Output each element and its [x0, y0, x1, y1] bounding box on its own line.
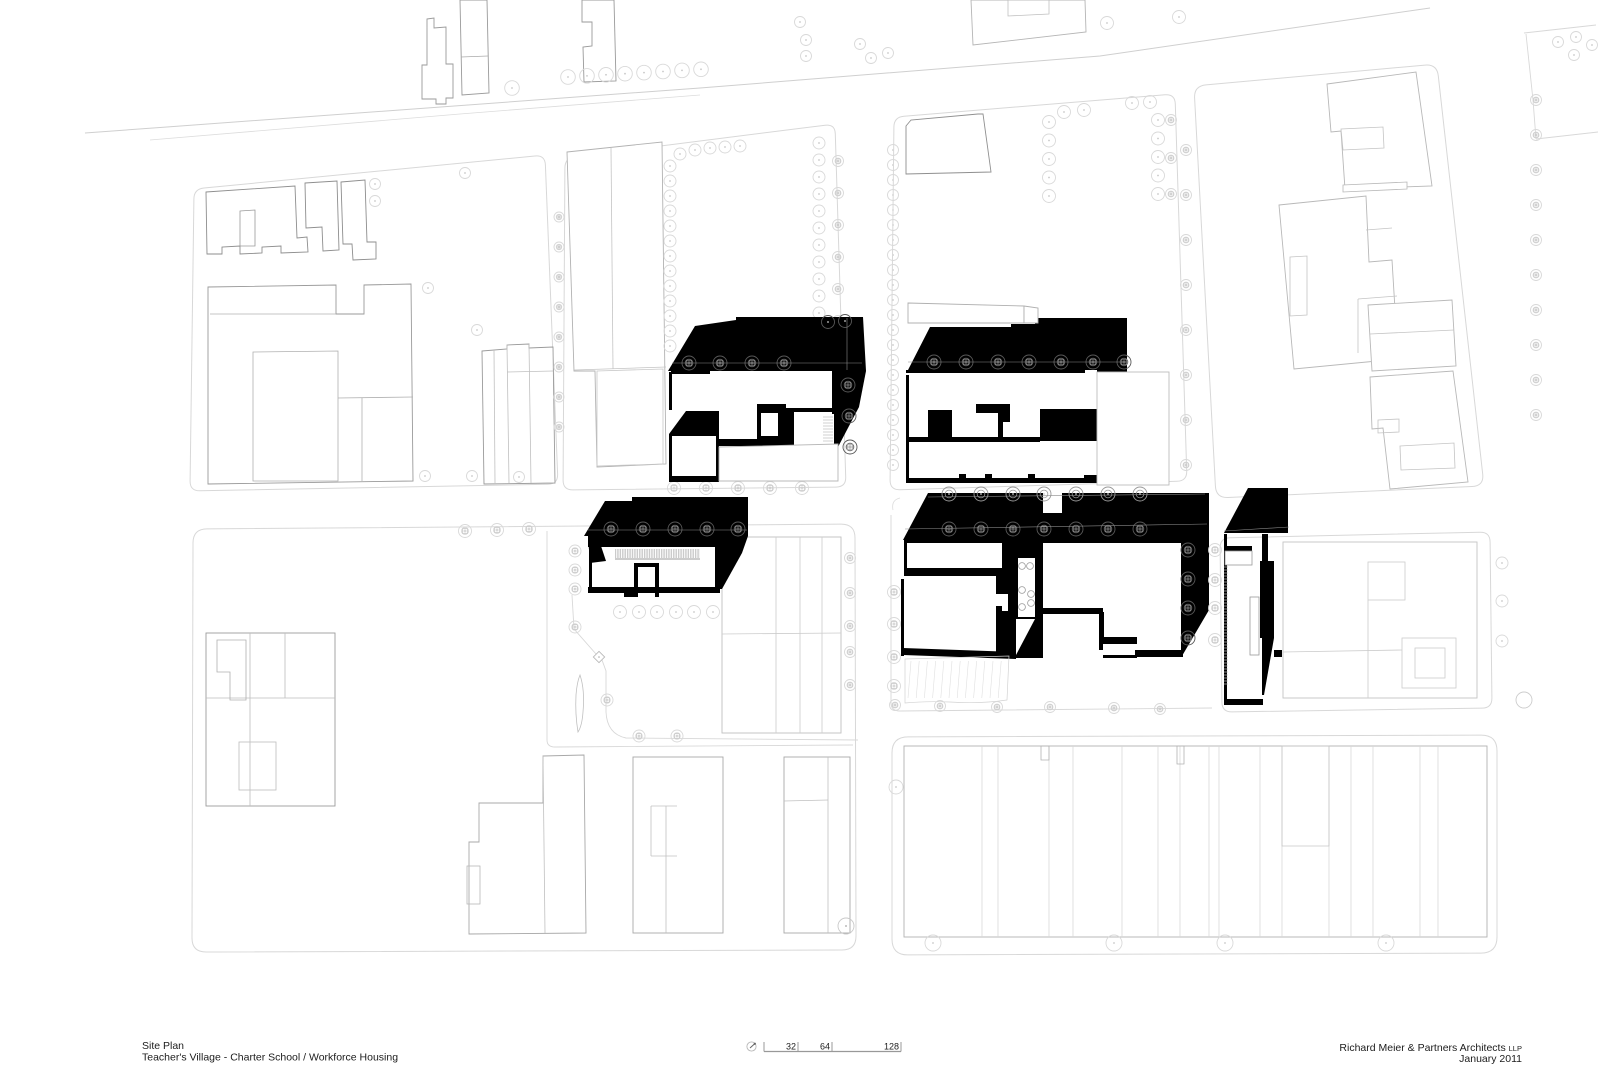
svg-text:Teacher's Village - Charter Sc: Teacher's Village - Charter School / Wor… [142, 1052, 398, 1064]
svg-text:64: 64 [820, 1042, 830, 1052]
svg-text:January 2011: January 2011 [1459, 1053, 1522, 1065]
svg-text:32: 32 [786, 1042, 796, 1052]
svg-text:128: 128 [884, 1042, 899, 1052]
svg-text:Site Plan: Site Plan [142, 1040, 184, 1052]
